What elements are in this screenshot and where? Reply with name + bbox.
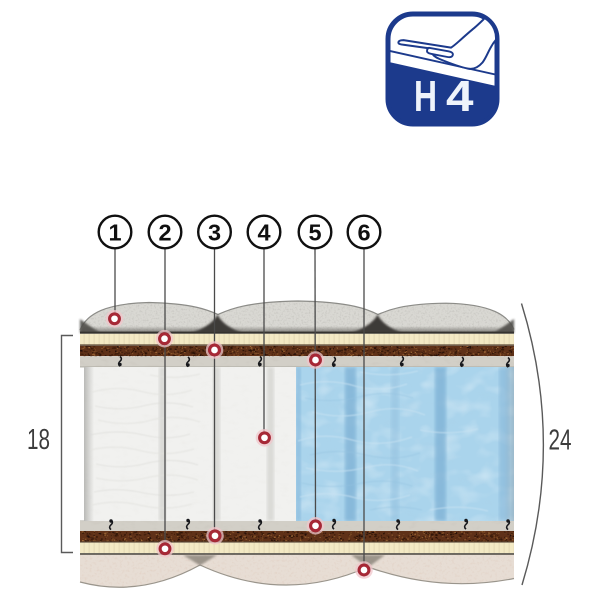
svg-text:5: 5	[308, 220, 321, 246]
svg-text:24: 24	[549, 425, 572, 457]
svg-text:H: H	[414, 72, 437, 121]
svg-text:18: 18	[27, 424, 50, 456]
svg-text:4: 4	[446, 72, 474, 121]
svg-text:3: 3	[208, 220, 221, 246]
svg-text:1: 1	[108, 220, 121, 246]
svg-text:6: 6	[357, 220, 370, 246]
svg-text:4: 4	[257, 220, 270, 246]
svg-text:2: 2	[158, 220, 171, 246]
